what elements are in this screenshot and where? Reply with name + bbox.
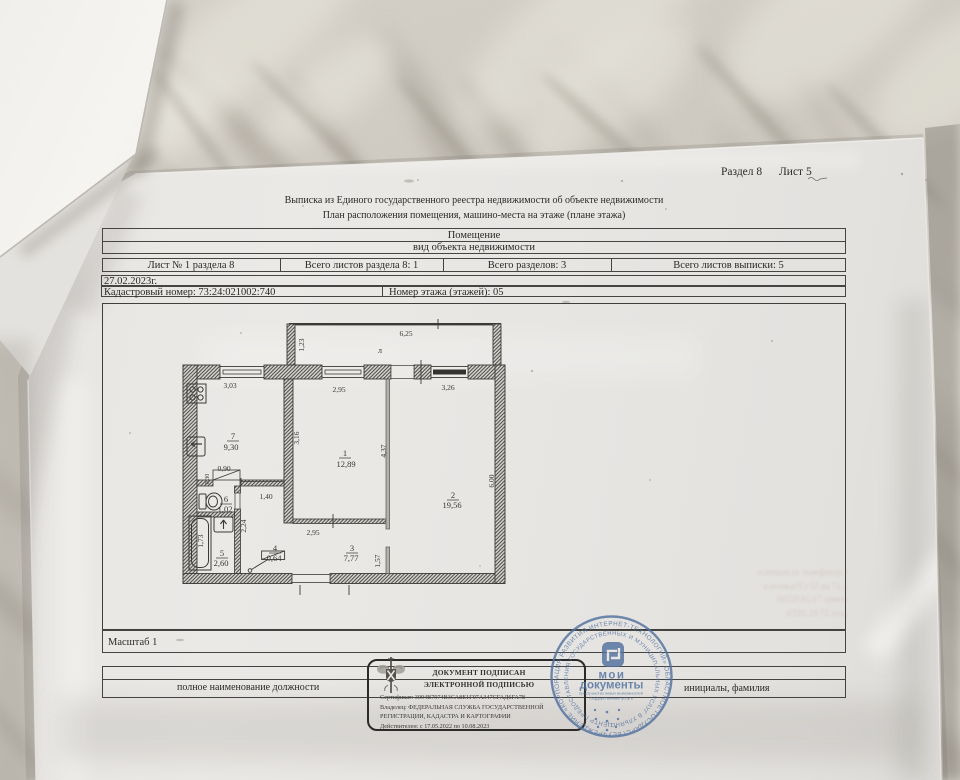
svg-text:5: 5	[220, 548, 224, 558]
svg-text:1,02: 1,02	[218, 504, 233, 514]
svg-text:6: 6	[224, 494, 228, 504]
svg-text:1,23: 1,23	[297, 338, 306, 351]
svg-text:0,90: 0,90	[217, 464, 230, 473]
svg-text:12,89: 12,89	[336, 459, 355, 469]
svg-text:1,73: 1,73	[196, 534, 205, 547]
svg-text:2,60: 2,60	[214, 558, 229, 568]
svg-text:9,30: 9,30	[224, 442, 239, 452]
svg-text:4,37: 4,37	[379, 444, 388, 457]
svg-text:2,24: 2,24	[239, 519, 248, 532]
svg-text:7,77: 7,77	[344, 553, 359, 563]
svg-text:19,56: 19,56	[442, 500, 461, 510]
svg-text:3,16: 3,16	[292, 431, 301, 444]
svg-text:3,03: 3,03	[223, 381, 236, 390]
svg-text:1,57: 1,57	[373, 554, 382, 567]
svg-text:4: 4	[273, 543, 278, 553]
svg-text:0,30: 0,30	[205, 474, 211, 485]
svg-text:государственные услуги: государственные услуги	[589, 696, 633, 701]
svg-text:7: 7	[231, 431, 235, 441]
svg-text:2,95: 2,95	[332, 385, 345, 394]
svg-text:1: 1	[343, 448, 347, 458]
svg-text:л: л	[378, 346, 382, 355]
svg-text:3,26: 3,26	[441, 383, 454, 392]
svg-text:3: 3	[350, 543, 354, 553]
svg-text:0,64: 0,64	[267, 553, 283, 563]
svg-text:6,00: 6,00	[487, 474, 496, 487]
svg-text:2: 2	[451, 490, 455, 500]
svg-text:6,25: 6,25	[399, 329, 412, 338]
svg-text:1,40: 1,40	[259, 492, 272, 501]
svg-text:2,95: 2,95	[306, 528, 319, 537]
